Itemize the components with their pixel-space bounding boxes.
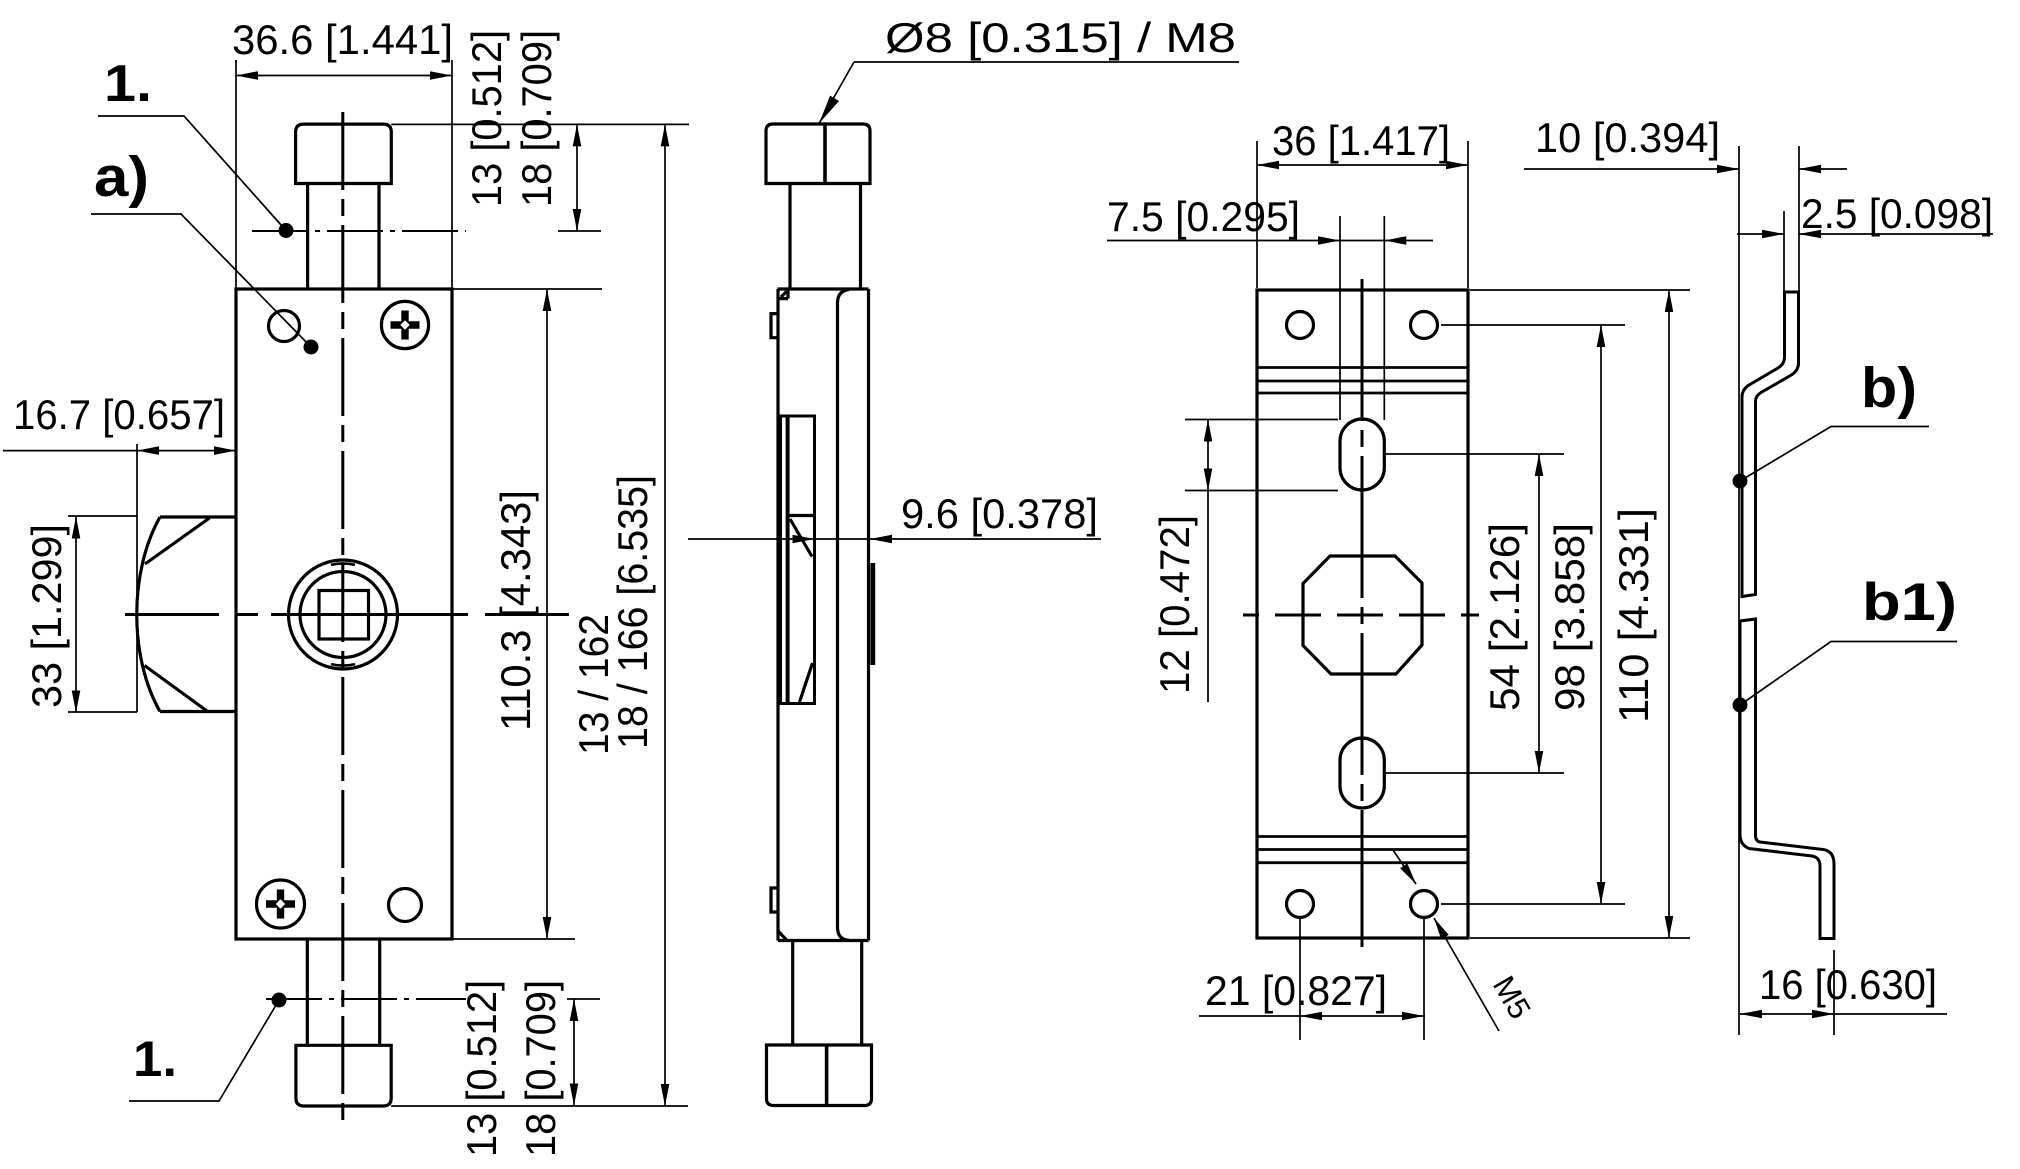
svg-text:18 [0.709]: 18 [0.709] (517, 980, 564, 1157)
svg-text:13 [0.512]: 13 [0.512] (463, 30, 510, 207)
svg-text:10 [0.394]: 10 [0.394] (1535, 114, 1720, 161)
svg-text:33 [1.299]: 33 [1.299] (23, 524, 70, 708)
svg-text:98 [3.858]: 98 [3.858] (1546, 523, 1593, 711)
svg-text:2.5 [0.098]: 2.5 [0.098] (1801, 190, 1993, 237)
svg-text:21 [0.827]: 21 [0.827] (1205, 967, 1387, 1014)
svg-text:9.6 [0.378]: 9.6 [0.378] (901, 490, 1098, 537)
svg-text:1.: 1. (104, 55, 152, 113)
svg-text:36 [1.417]: 36 [1.417] (1272, 117, 1450, 164)
svg-text:1.: 1. (133, 1031, 177, 1087)
svg-text:16 [0.630]: 16 [0.630] (1759, 961, 1937, 1008)
svg-text:54 [2.126]: 54 [2.126] (1481, 523, 1528, 711)
svg-text:110 [4.331]: 110 [4.331] (1610, 508, 1657, 723)
svg-text:16.7 [0.657]: 16.7 [0.657] (13, 391, 225, 438)
svg-text:13 [0.512]: 13 [0.512] (458, 980, 505, 1157)
svg-text:b1): b1) (1862, 573, 1957, 632)
svg-text:110.3 [4.343]: 110.3 [4.343] (492, 490, 539, 731)
svg-text:36.6 [1.441]: 36.6 [1.441] (232, 16, 453, 63)
svg-text:12 [0.472]: 12 [0.472] (1151, 515, 1198, 694)
svg-text:Ø8 [0.315] / M8: Ø8 [0.315] / M8 (885, 14, 1236, 61)
svg-text:18 / 166 [6.535]: 18 / 166 [6.535] (609, 475, 656, 749)
svg-text:a): a) (94, 145, 149, 209)
svg-text:7.5 [0.295]: 7.5 [0.295] (1107, 193, 1300, 240)
svg-text:b): b) (1861, 356, 1917, 420)
svg-text:18 [0.709]: 18 [0.709] (513, 30, 560, 207)
